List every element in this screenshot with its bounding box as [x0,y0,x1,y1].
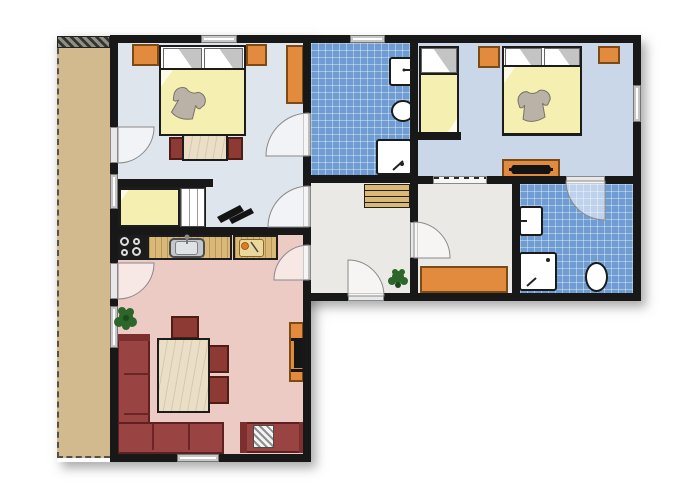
plant-hall-leaf-2 [388,277,396,285]
plant-living-leaf-4 [118,307,126,315]
door-arc-bedroom1 [268,186,309,227]
plant-living-center [123,315,129,321]
sweater-bedroom1 [168,85,208,124]
plant-living-leaf-6 [122,322,130,330]
sweater-bedroom2 [517,89,552,122]
plant-living-leaf-5 [126,308,134,316]
door-arc-living [274,245,309,280]
bathroom1-faucet-dot [403,69,406,72]
cutting-board-knife [251,242,258,252]
door-arc-balcony-bedroom1 [118,127,154,163]
dresser-tv-bar [509,168,553,171]
door-arc-storage [414,222,450,258]
plan-annotations [0,0,700,500]
bathroom2-shower-drain [546,258,550,262]
bathroom2-shower-handle [527,278,536,286]
plant-hall-leaf-5 [399,269,405,275]
plant-hall-leaf-3 [400,277,408,285]
door-arc-entry [348,260,384,296]
plant-hall-center [395,282,401,288]
floor-plan [0,0,700,500]
door-arc-balcony-living [118,263,154,299]
door-arc-bathroom1 [266,113,309,156]
kitchen-faucet-head [185,235,190,240]
door-arc-bathroom2 [566,181,605,220]
cutting-board-food [242,243,249,250]
plant-hall-leaf-4 [392,269,398,275]
